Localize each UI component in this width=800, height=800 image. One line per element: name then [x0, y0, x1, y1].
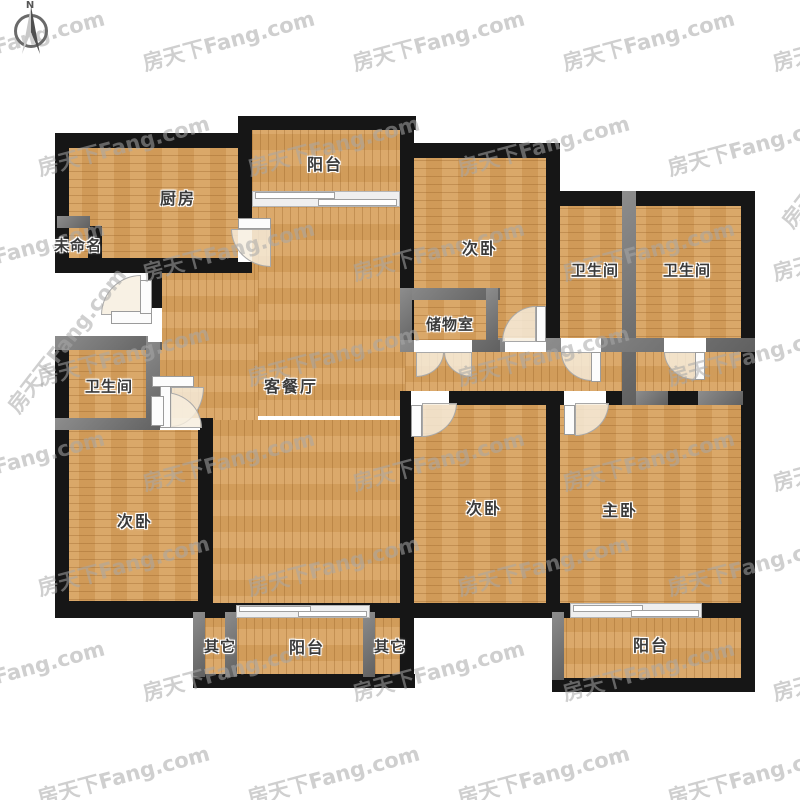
bedroom-top-door-leaf [536, 306, 546, 342]
bedroom-left-door-leaf [151, 396, 164, 426]
watermark-text: 房天下Fang.com [774, 76, 800, 234]
door-opening [664, 338, 706, 352]
bedroom-middle-door-leaf [411, 405, 422, 437]
watermark-text: 房天下Fang.com [349, 3, 528, 78]
room-label-kitchen: 厨房 [160, 185, 196, 209]
kitchen-door-leaf [238, 218, 271, 229]
partition-wall [636, 391, 668, 405]
sliding-door-panel [298, 611, 367, 617]
partition-wall [57, 216, 90, 228]
door-opening [561, 338, 601, 352]
watermark-text: 房天下Fang.com [244, 738, 423, 800]
watermark-text: 房天下Fang.com [454, 738, 633, 800]
room-label-unnamed-nook: 未命名 [54, 235, 102, 256]
compass: N [6, 0, 54, 58]
partition-wall [55, 418, 162, 430]
wall [238, 116, 252, 220]
watermark-text: 房天下Fang.com [34, 738, 213, 800]
wall [741, 612, 755, 692]
watermark-text: 房天下Fang.com [0, 633, 108, 708]
floorplan-canvas: 房天下Fang.com房天下Fang.com房天下Fang.com房天下Fang… [0, 0, 800, 800]
wall [55, 601, 213, 618]
entry-door-leaf [140, 280, 152, 314]
partition-wall [400, 288, 500, 300]
room-label-master-bedroom: 主卧 [602, 497, 638, 521]
watermark-text: 房天下Fang.com [769, 3, 800, 78]
wall [198, 418, 213, 618]
room-label-balcony-right: 阳台 [633, 632, 669, 656]
room-label-bathroom-ensuite-left: 卫生间 [571, 260, 619, 281]
wall [400, 143, 560, 158]
wall [55, 133, 251, 148]
partition-wall [552, 612, 564, 680]
watermark-text: 房天下Fang.com [769, 213, 800, 288]
wall [546, 158, 560, 352]
door-opening [414, 340, 472, 352]
watermark-text: 房天下Fang.com [664, 108, 800, 183]
room-label-bathroom-ensuite-right: 卫生间 [663, 260, 711, 281]
watermark-text: 房天下Fang.com [769, 423, 800, 498]
bathroom-ensuite-left-door-leaf [591, 352, 601, 382]
sliding-door-panel [318, 199, 397, 206]
room-label-bedroom-left: 次卧 [117, 508, 153, 532]
room-label-other-right: 其它 [374, 636, 406, 657]
room-label-balcony-bottom: 阳台 [289, 634, 325, 658]
watermark-text: 房天下Fang.com [559, 3, 738, 78]
wall [400, 603, 561, 618]
entry-door-arc [101, 275, 141, 315]
room-label-balcony-top: 阳台 [307, 151, 343, 175]
wall [552, 678, 755, 692]
room-label-other-left: 其它 [204, 636, 236, 657]
wall [238, 262, 252, 273]
room-label-bedroom-middle: 次卧 [466, 495, 502, 519]
wall [55, 336, 69, 618]
bathroom-left-door-threshold [152, 376, 194, 387]
sliding-door-panel [631, 610, 699, 617]
watermark-text: 房天下Fang.com [139, 3, 318, 78]
wall [546, 191, 755, 206]
watermark-text: 房天下Fang.com [769, 633, 800, 708]
master-bedroom-door-leaf [564, 405, 575, 435]
wall [546, 391, 560, 618]
room-label-bathroom-left: 卫生间 [85, 376, 133, 397]
bathroom-ensuite-right-door-leaf [695, 352, 705, 380]
sliding-door-panel [255, 192, 335, 199]
watermark-text: 房天下Fang.com [664, 738, 800, 800]
compass-north-label: N [26, 0, 34, 11]
room-label-bedroom-top: 次卧 [462, 235, 498, 259]
living-room-floor [212, 420, 412, 612]
partition-wall [698, 391, 743, 405]
wall [238, 116, 416, 130]
room-label-living-dining-room: 客餐厅 [264, 373, 318, 397]
room-label-storage-room: 储物室 [426, 314, 474, 335]
partition-wall [622, 191, 636, 405]
